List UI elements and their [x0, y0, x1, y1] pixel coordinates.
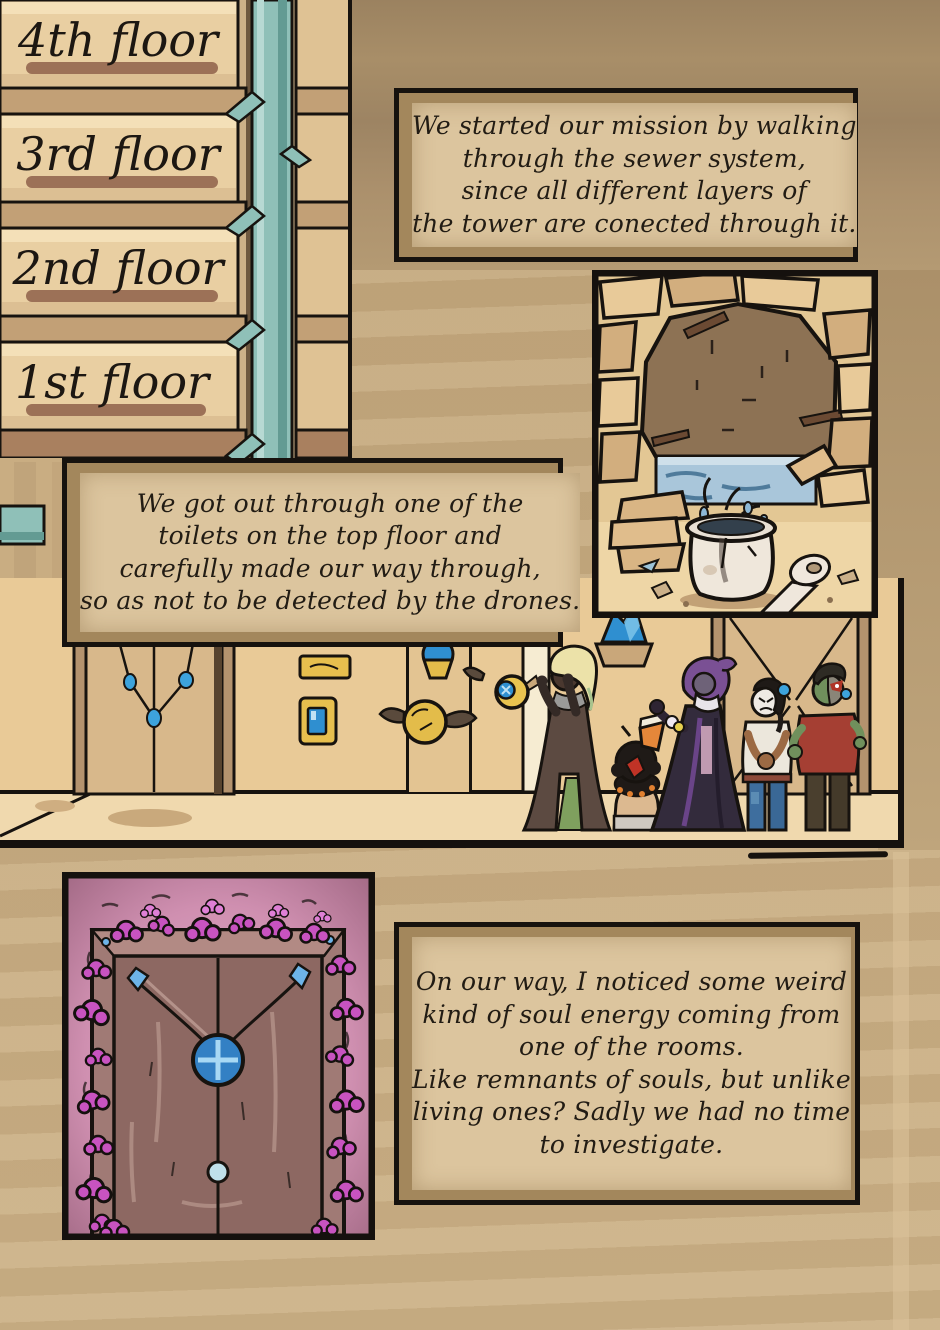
earpiece — [841, 689, 851, 699]
door-gem — [124, 674, 136, 690]
door-gem — [147, 709, 161, 727]
floor-sign-1: 1st floor — [15, 355, 212, 409]
narration-line: living ones? Sadly we had no time — [413, 1096, 851, 1129]
narration-line: to investigate. — [540, 1129, 724, 1162]
narration-line: We started our mission by walking — [412, 110, 857, 143]
glowing-door-panel — [62, 872, 375, 1240]
narration-line: one of the rooms. — [519, 1031, 744, 1064]
narration-line: We got out through one of the — [137, 488, 524, 521]
name-plate — [300, 656, 350, 678]
narration-line: the tower are conected through it. — [412, 208, 857, 241]
floor-sign-3: 3rd floor — [16, 127, 222, 181]
narration-line: so as not to be detected by the drones. — [80, 585, 580, 618]
narration-box-1: We started our mission by walking throug… — [394, 88, 858, 262]
narration-line: since all different layers of — [462, 175, 807, 208]
narration-box-3: On our way, I noticed some weird kind of… — [394, 922, 860, 1205]
toilet — [680, 515, 784, 609]
narration-line: Like remnants of souls, but unlike — [412, 1064, 851, 1097]
narration-paper: On our way, I noticed some weird kind of… — [412, 937, 851, 1190]
narration-paper: We started our mission by walking throug… — [412, 103, 857, 247]
narration-line: toilets on the top floor and — [158, 520, 502, 553]
narration-paper: We got out through one of the toilets on… — [80, 473, 580, 632]
sewer-illustration — [592, 270, 878, 618]
comic-page: 4th floor 3rd floor 2nd floor 1st floor — [0, 0, 940, 1330]
narration-box-2: We got out through one of the toilets on… — [62, 458, 563, 647]
background-streak — [893, 852, 909, 1330]
floor-sign-2: 2nd floor — [11, 241, 226, 295]
narration-line: through the sewer system, — [463, 143, 806, 176]
door-gem — [179, 672, 193, 688]
floor-sign-4: 4th floor — [17, 13, 221, 67]
glowing-door-illustration — [62, 872, 375, 1240]
hooded-face — [693, 673, 715, 695]
small-orb — [208, 1162, 228, 1182]
magic-switch — [300, 698, 336, 744]
floor-shadow — [108, 809, 192, 827]
sewer-panel — [592, 270, 878, 618]
narration-line: On our way, I noticed some weird — [416, 966, 847, 999]
door-leaves — [114, 956, 322, 1240]
narration-line: carefully made our way through, — [119, 553, 540, 586]
brush-stroke-line — [748, 851, 888, 858]
narration-line: kind of soul energy coming from — [422, 999, 840, 1032]
